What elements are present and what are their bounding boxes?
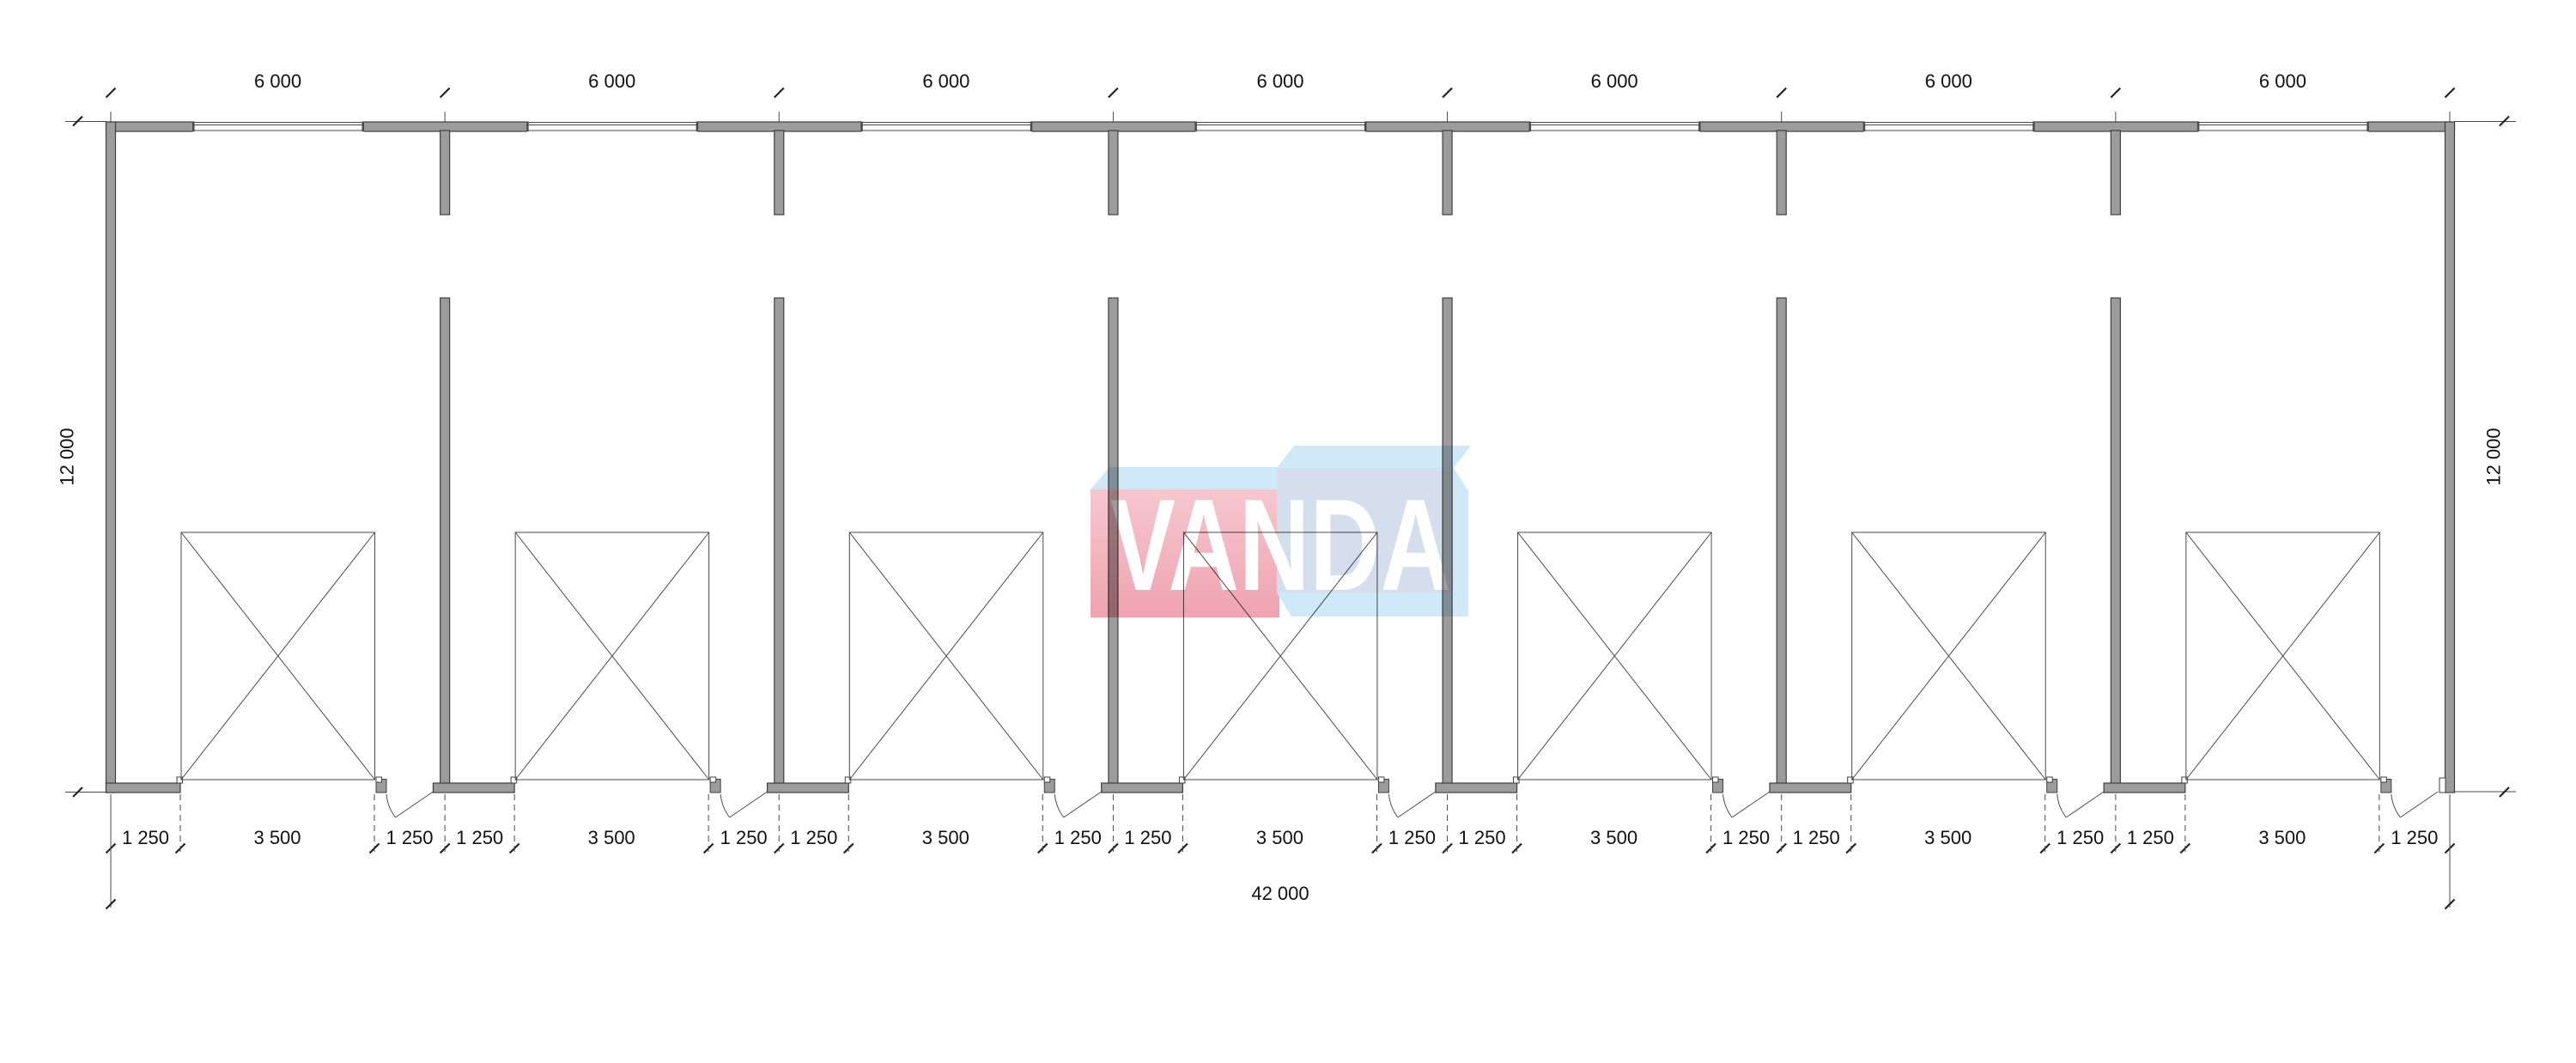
partition-wall (1777, 298, 1786, 784)
top-dim-tick (775, 88, 784, 98)
partition-stub (440, 131, 450, 215)
partition-stub (1109, 131, 1118, 215)
partition-stub (2111, 131, 2120, 215)
top-dim-label: 6 000 (922, 70, 969, 92)
window-end-frame (2197, 122, 2200, 132)
window-end-frame (192, 122, 195, 132)
partition-stub (775, 131, 784, 215)
bottom-dim-label: 1 250 (1459, 827, 1506, 848)
door-swing-arc (720, 794, 730, 817)
garage-jamb-right (1378, 777, 1384, 782)
top-dim-tick (1777, 88, 1786, 98)
top-dim-tick (106, 88, 116, 98)
garage-jamb-right (710, 777, 716, 782)
floor-plan-canvas: 6 0006 0006 0006 0006 0006 0006 00012 00… (0, 0, 2576, 1063)
bottom-dim-label: 3 500 (588, 827, 635, 848)
bottom-dim-label: 1 250 (1793, 827, 1840, 848)
door-swing-arc (1388, 794, 1398, 817)
door-swing-arc (1054, 794, 1064, 817)
bottom-dim-label: 3 500 (253, 827, 301, 848)
window-end-frame (526, 122, 529, 132)
partition-wall (2111, 298, 2120, 784)
bottom-dim-label: 1 250 (2057, 827, 2104, 848)
left-wall (106, 122, 116, 793)
bottom-dim-label: 1 250 (1124, 827, 1171, 848)
bottom-dim-label: 3 500 (922, 827, 969, 848)
partition-stub (1443, 131, 1452, 215)
bottom-dim-label: 1 250 (1054, 827, 1102, 848)
window-end-frame (2366, 122, 2369, 132)
top-dim-tick (2111, 88, 2120, 98)
partition-wall (1109, 298, 1118, 784)
top-dim-tick (440, 88, 450, 98)
bottom-dim-label: 1 250 (386, 827, 433, 848)
bottom-wall-segment (433, 783, 514, 793)
garage-jamb-right (1713, 777, 1719, 782)
bottom-dim-label: 1 250 (720, 827, 768, 848)
partition-wall (1443, 298, 1452, 784)
top-dim-label: 6 000 (254, 70, 301, 92)
bottom-dim-label: 1 250 (790, 827, 837, 848)
floor-plan-page: 6 0006 0006 0006 0006 0006 0006 00012 00… (0, 0, 2576, 1063)
window-end-frame (860, 122, 863, 132)
door-leaf (1732, 792, 1770, 817)
window-end-frame (1698, 122, 1701, 132)
bottom-dim-label: 3 500 (1256, 827, 1303, 848)
left-dim-label: 12 000 (57, 428, 78, 485)
bottom-dim-label: 3 500 (1590, 827, 1637, 848)
window-end-frame (2032, 122, 2035, 132)
top-dim-label: 6 000 (1925, 70, 1972, 92)
bottom-wall-segment (1436, 783, 1517, 793)
bottom-dim-label: 3 500 (1924, 827, 1971, 848)
right-dim-label: 12 000 (2483, 428, 2505, 485)
window-end-frame (696, 122, 699, 132)
door-leaf (1398, 792, 1436, 817)
garage-jamb-right (1044, 777, 1050, 782)
bottom-dim-label: 1 250 (456, 827, 503, 848)
window-end-frame (1030, 122, 1033, 132)
bottom-wall-segment (1102, 783, 1183, 793)
bottom-dim-label: 1 250 (2391, 827, 2438, 848)
bottom-dim-label: 3 500 (2258, 827, 2306, 848)
partition-wall (775, 298, 784, 784)
door-swing-arc (1723, 794, 1733, 817)
bottom-dim-label: 1 250 (1388, 827, 1436, 848)
door-leaf (1064, 792, 1102, 817)
bottom-wall-segment (768, 783, 849, 793)
window-end-frame (1863, 122, 1866, 132)
partition-stub (1777, 131, 1786, 215)
bottom-wall-segment (106, 783, 181, 793)
window-end-frame (362, 122, 365, 132)
bottom-wall-segment (2104, 783, 2185, 793)
bottom-dim-label: 1 250 (2127, 827, 2174, 848)
door-leaf (2400, 792, 2438, 817)
top-dim-tick (1109, 88, 1118, 98)
top-dim-tick (2445, 88, 2455, 98)
top-dim-label: 6 000 (1256, 70, 1303, 92)
top-dim-tick (1443, 88, 1452, 98)
garage-jamb-right (376, 777, 382, 782)
garage-jamb-right (2047, 777, 2053, 782)
overall-dim-label: 42 000 (1251, 883, 1309, 904)
corner-door-jamb (2439, 778, 2445, 793)
door-leaf (2066, 792, 2104, 817)
top-dim-label: 6 000 (588, 70, 635, 92)
top-dim-label: 6 000 (2259, 70, 2306, 92)
door-leaf (396, 792, 434, 817)
door-swing-arc (386, 794, 396, 817)
top-dim-label: 6 000 (1591, 70, 1638, 92)
bottom-dim-label: 1 250 (1722, 827, 1770, 848)
window-end-frame (1364, 122, 1367, 132)
bottom-wall-segment (1770, 783, 1851, 793)
window-end-frame (1194, 122, 1197, 132)
bottom-dim-label: 1 250 (122, 827, 169, 848)
partition-wall (440, 298, 450, 784)
window-end-frame (1529, 122, 1532, 132)
door-swing-arc (2391, 794, 2401, 817)
door-swing-arc (2057, 794, 2067, 817)
right-wall (2445, 122, 2455, 793)
garage-jamb-right (2381, 777, 2387, 782)
door-leaf (730, 792, 768, 817)
